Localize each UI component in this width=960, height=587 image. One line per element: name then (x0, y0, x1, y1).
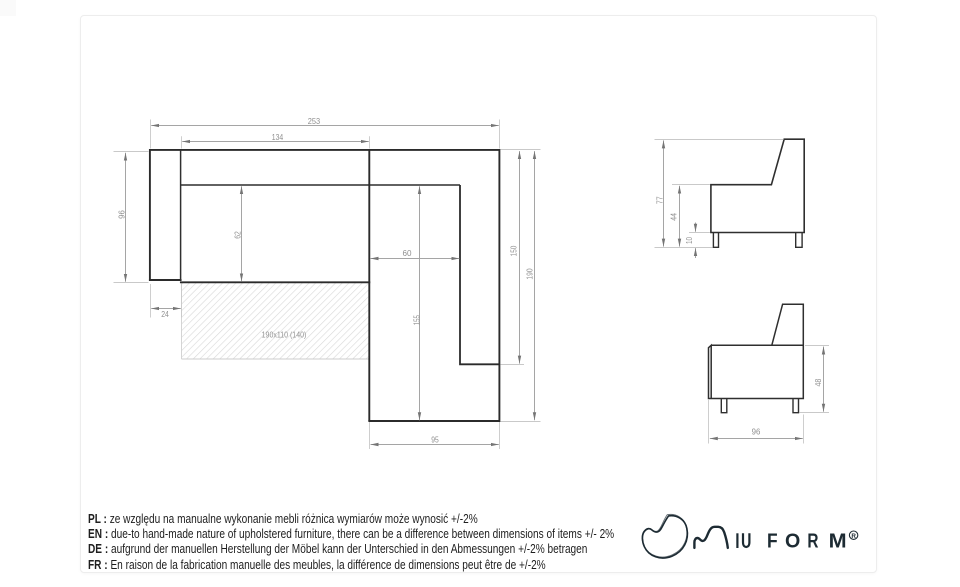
svg-text:24: 24 (161, 309, 169, 319)
svg-text:134: 134 (272, 132, 284, 142)
svg-text:190: 190 (525, 268, 535, 279)
svg-text:44: 44 (669, 213, 679, 221)
svg-text:96: 96 (752, 427, 761, 437)
svg-text:62: 62 (232, 231, 242, 239)
svg-text:95: 95 (431, 435, 439, 445)
svg-text:10: 10 (684, 237, 694, 244)
svg-text:R: R (807, 531, 819, 553)
svg-text:F: F (767, 531, 778, 553)
svg-text:190x110 (140): 190x110 (140) (262, 330, 307, 340)
svg-text:96: 96 (116, 210, 126, 219)
svg-text:77: 77 (655, 196, 665, 204)
svg-text:R: R (851, 533, 856, 540)
svg-text:O: O (785, 531, 800, 553)
svg-text:155: 155 (411, 315, 421, 325)
svg-text:48: 48 (813, 378, 823, 386)
svg-text:253: 253 (308, 116, 321, 126)
svg-text:150: 150 (508, 245, 518, 256)
svg-text:M: M (829, 531, 847, 553)
svg-text:60: 60 (403, 248, 412, 258)
